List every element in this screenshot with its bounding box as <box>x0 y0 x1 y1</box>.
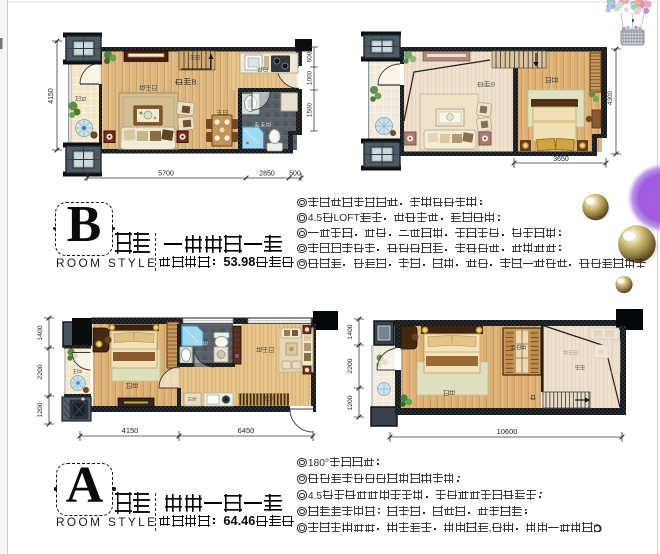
svg-text:5700: 5700 <box>158 171 174 178</box>
svg-text:1200: 1200 <box>347 395 354 410</box>
svg-text:10600: 10600 <box>497 427 518 436</box>
svg-text:1400: 1400 <box>347 324 354 339</box>
svg-text:2850: 2850 <box>259 171 275 178</box>
svg-text:1000: 1000 <box>307 70 314 85</box>
svg-text:1400: 1400 <box>37 325 44 340</box>
svg-text:6450: 6450 <box>238 426 255 435</box>
svg-text:600: 600 <box>307 51 314 62</box>
svg-text:2200: 2200 <box>37 364 44 379</box>
svg-text:1500: 1500 <box>307 102 314 117</box>
svg-text:3650: 3650 <box>553 156 569 163</box>
svg-text:4150: 4150 <box>122 426 139 435</box>
svg-text:4150: 4150 <box>48 88 55 104</box>
svg-text:500: 500 <box>289 171 301 178</box>
svg-text:4300: 4300 <box>607 90 614 105</box>
svg-text:1200: 1200 <box>37 402 44 417</box>
svg-text:2200: 2200 <box>347 358 354 373</box>
